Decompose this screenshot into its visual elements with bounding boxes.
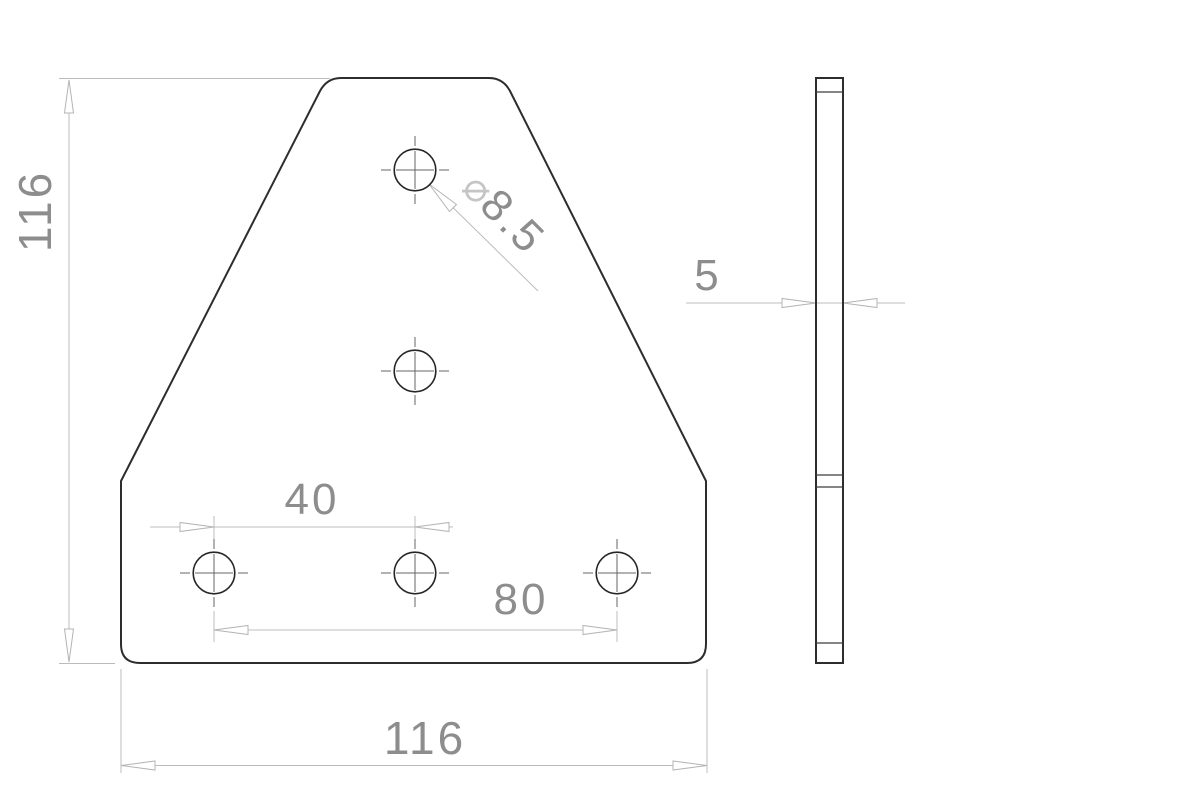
dim-text-overall-width: 116 — [384, 715, 466, 761]
dim-text-hole-pitch-40: 40 — [285, 478, 340, 522]
dim-text-hole-pitch-80: 80 — [494, 578, 549, 622]
arrow-height-top — [65, 80, 74, 113]
engineering-drawing-canvas: 116 116 40 80 5 ⌀8.5 — [0, 0, 1200, 788]
dim-text-overall-height: 116 — [12, 170, 58, 252]
drawing-linework — [0, 0, 1200, 788]
arrow-80-left — [214, 626, 248, 635]
extension-lines — [59, 79, 707, 774]
arrow-width-right — [673, 761, 707, 770]
arrow-width-left — [121, 761, 155, 770]
dim-text-thickness: 5 — [694, 254, 721, 298]
arrow-thickness-right — [843, 299, 877, 308]
arrow-hole-leader — [429, 184, 457, 212]
arrow-height-bottom — [65, 629, 74, 662]
side-view-outline — [816, 78, 843, 663]
arrow-40-right — [415, 523, 449, 532]
arrow-80-right — [583, 626, 617, 635]
arrow-thickness-left — [782, 299, 816, 308]
side-view — [816, 78, 843, 663]
arrow-40-left — [180, 523, 214, 532]
side-view-edge-lines — [816, 92, 843, 643]
